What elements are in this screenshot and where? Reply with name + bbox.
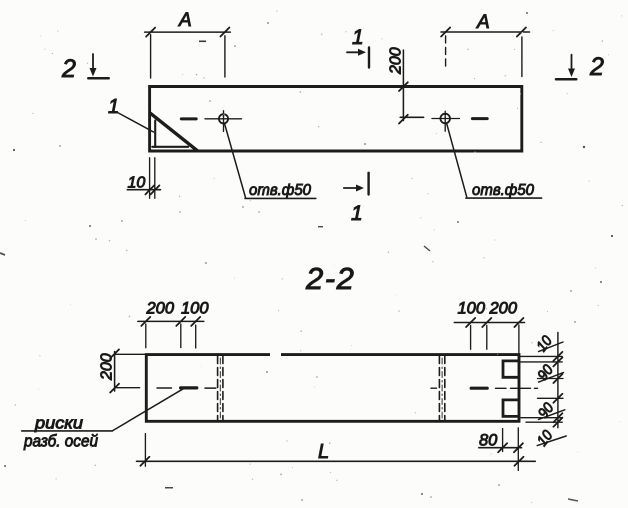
svg-text:1: 1 <box>351 202 363 225</box>
svg-text:отв.ф50: отв.ф50 <box>472 182 534 199</box>
svg-text:80: 80 <box>479 432 498 450</box>
svg-text:разб. осей: разб. осей <box>23 432 98 451</box>
svg-text:2: 2 <box>589 53 604 81</box>
svg-text:200: 200 <box>489 300 518 318</box>
svg-text:200: 200 <box>146 300 175 318</box>
svg-text:1: 1 <box>352 26 364 49</box>
svg-text:риски: риски <box>34 414 84 433</box>
svg-text:отв.ф50: отв.ф50 <box>249 182 311 199</box>
svg-text:A: A <box>476 12 490 33</box>
svg-text:A: A <box>178 10 192 31</box>
svg-text:200: 200 <box>388 47 405 75</box>
svg-text:1: 1 <box>108 96 119 118</box>
svg-text:2: 2 <box>61 55 76 83</box>
svg-text:100: 100 <box>181 300 209 318</box>
svg-text:L: L <box>318 441 329 463</box>
svg-text:100: 100 <box>458 300 486 318</box>
svg-text:200: 200 <box>99 353 116 381</box>
svg-text:2-2: 2-2 <box>305 261 355 296</box>
svg-text:10: 10 <box>128 175 146 192</box>
